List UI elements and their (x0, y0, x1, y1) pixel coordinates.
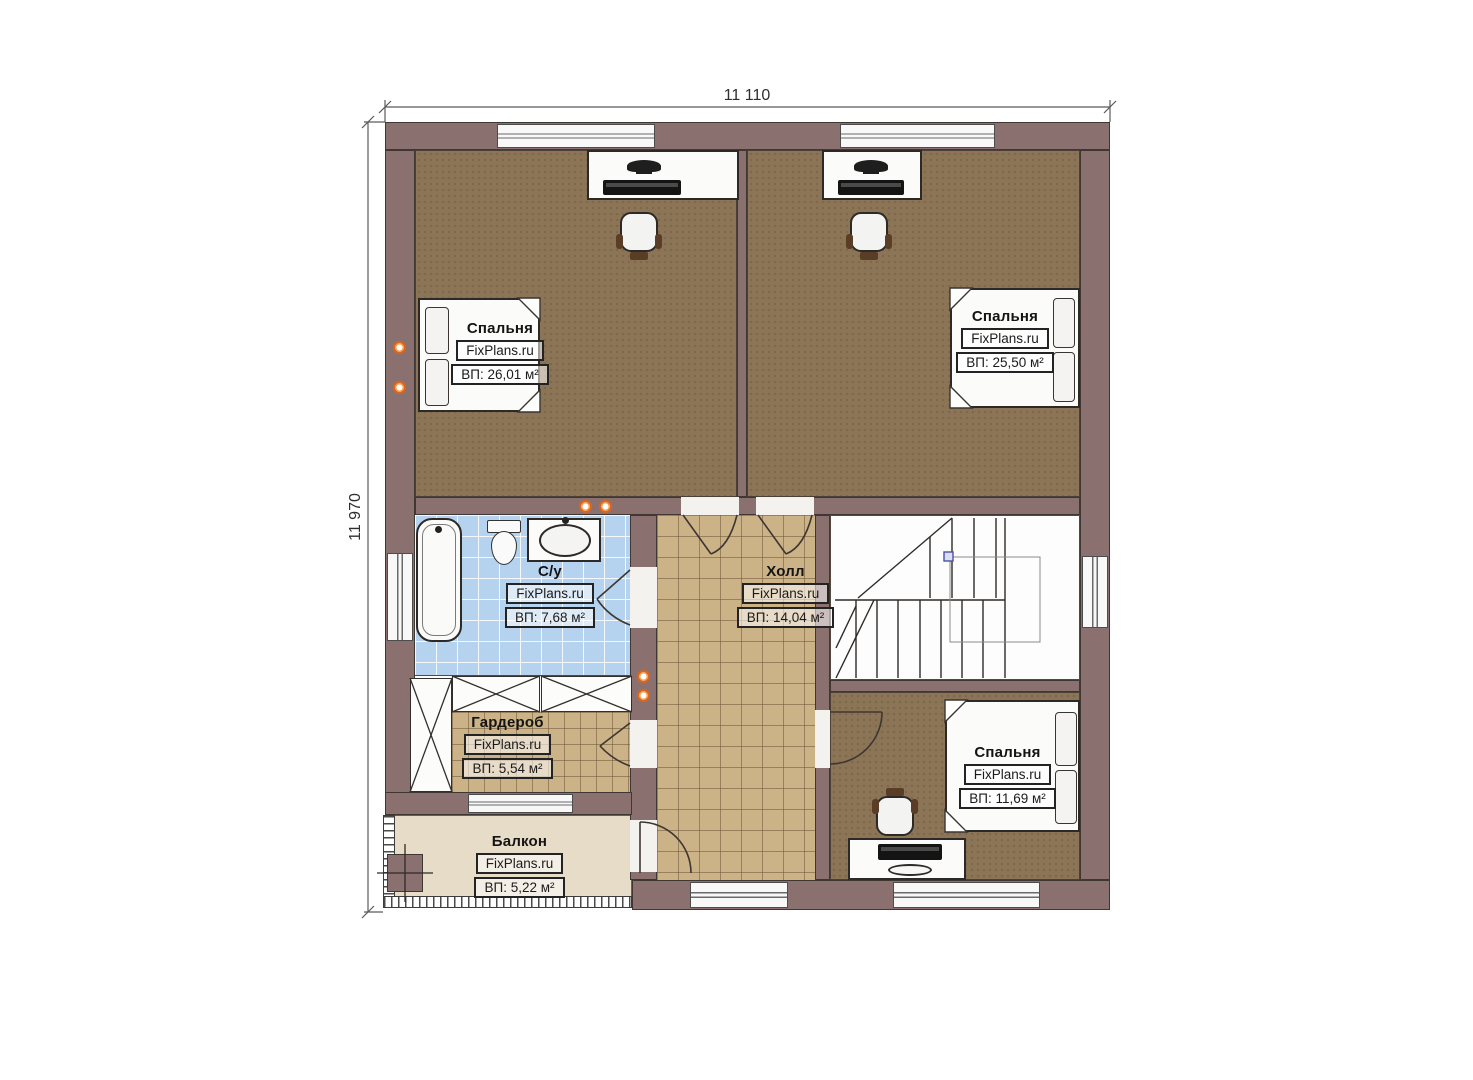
wardrobe-cabinet-icon (541, 676, 632, 712)
desk-lamp-icon (854, 160, 888, 172)
sink-counter-icon (527, 518, 601, 562)
light-marker-icon (637, 689, 650, 702)
balcony-corner-post (387, 854, 423, 892)
dimension-left-label: 11 970 (347, 493, 364, 541)
room-area: ВП: 14,04 м² (737, 607, 835, 628)
stairwell-floor (830, 515, 1080, 680)
desk-icon (822, 150, 922, 200)
room-site-watermark: FixPlans.ru (476, 853, 564, 874)
wall-right (1080, 150, 1110, 880)
light-marker-icon (393, 341, 406, 354)
sink-basin-icon (539, 524, 591, 557)
room-label-hall: Холл FixPlans.ru ВП: 14,04 м² (728, 563, 843, 628)
chair-icon (616, 212, 662, 260)
wardrobe-cabinet-icon (410, 678, 452, 792)
bathtub-icon (416, 518, 462, 642)
room-name: Спальня (974, 744, 1040, 761)
window (840, 124, 995, 148)
dimension-left (362, 116, 385, 918)
wardrobe-cabinet-icon (452, 676, 540, 712)
window (893, 882, 1040, 908)
light-marker-icon (637, 670, 650, 683)
room-name: Холл (766, 563, 804, 580)
room-site-watermark: FixPlans.ru (506, 583, 594, 604)
dimension-top-label: 11 110 (724, 87, 771, 104)
door-opening (815, 710, 830, 768)
room-area: ВП: 7,68 м² (505, 607, 595, 628)
window (468, 794, 573, 813)
room-site-watermark: FixPlans.ru (964, 764, 1052, 785)
door-opening (756, 497, 814, 515)
room-name: С/у (538, 563, 562, 580)
window (690, 882, 788, 908)
room-site-watermark: FixPlans.ru (742, 583, 830, 604)
dimension-top (379, 100, 1116, 122)
room-site-watermark: FixPlans.ru (456, 340, 544, 361)
room-area: ВП: 5,54 м² (462, 758, 552, 779)
wall-bedroom-divider (737, 150, 747, 497)
room-area: ВП: 5,22 м² (474, 877, 564, 898)
room-name: Балкон (492, 833, 547, 850)
desk-icon (587, 150, 739, 200)
plate-icon (888, 864, 932, 876)
desk-icon (848, 838, 966, 880)
door-opening (630, 720, 657, 768)
wall-stairs-bedroom (830, 680, 1080, 692)
chair-icon (846, 212, 892, 260)
room-label-bedroom-top-left: Спальня FixPlans.ru ВП: 26,01 м² (440, 320, 560, 385)
window (497, 124, 655, 148)
room-area: ВП: 11,69 м² (959, 788, 1056, 809)
laptop-icon (838, 180, 904, 195)
laptop-icon (878, 844, 942, 860)
window (387, 553, 413, 641)
door-opening (630, 567, 657, 628)
room-area: ВП: 25,50 м² (956, 352, 1054, 373)
desk-lamp-icon (627, 160, 661, 172)
chair-icon (872, 788, 918, 836)
room-label-wardrobe: Гардероб FixPlans.ru ВП: 5,54 м² (450, 714, 565, 779)
toilet-icon (487, 520, 521, 568)
room-name: Спальня (467, 320, 533, 337)
wall-mid-horizontal (415, 497, 1080, 515)
room-label-bedroom-top-right: Спальня FixPlans.ru ВП: 25,50 м² (945, 308, 1065, 373)
light-marker-icon (579, 500, 592, 513)
light-marker-icon (599, 500, 612, 513)
door-opening (681, 497, 739, 515)
room-site-watermark: FixPlans.ru (961, 328, 1049, 349)
laptop-icon (603, 180, 681, 195)
room-site-watermark: FixPlans.ru (464, 734, 552, 755)
room-label-balcony: Балкон FixPlans.ru ВП: 5,22 м² (462, 833, 577, 898)
room-name: Гардероб (471, 714, 544, 731)
window (1082, 556, 1108, 628)
door-opening (630, 820, 657, 872)
room-name: Спальня (972, 308, 1038, 325)
floor-plan-canvas: 11 110 11 970 (0, 0, 1473, 1080)
room-label-bathroom: С/у FixPlans.ru ВП: 7,68 м² (495, 563, 605, 628)
light-marker-icon (393, 381, 406, 394)
room-label-bedroom-bottom-right: Спальня FixPlans.ru ВП: 11,69 м² (945, 744, 1070, 809)
room-area: ВП: 26,01 м² (451, 364, 549, 385)
wall-top (385, 122, 1110, 150)
